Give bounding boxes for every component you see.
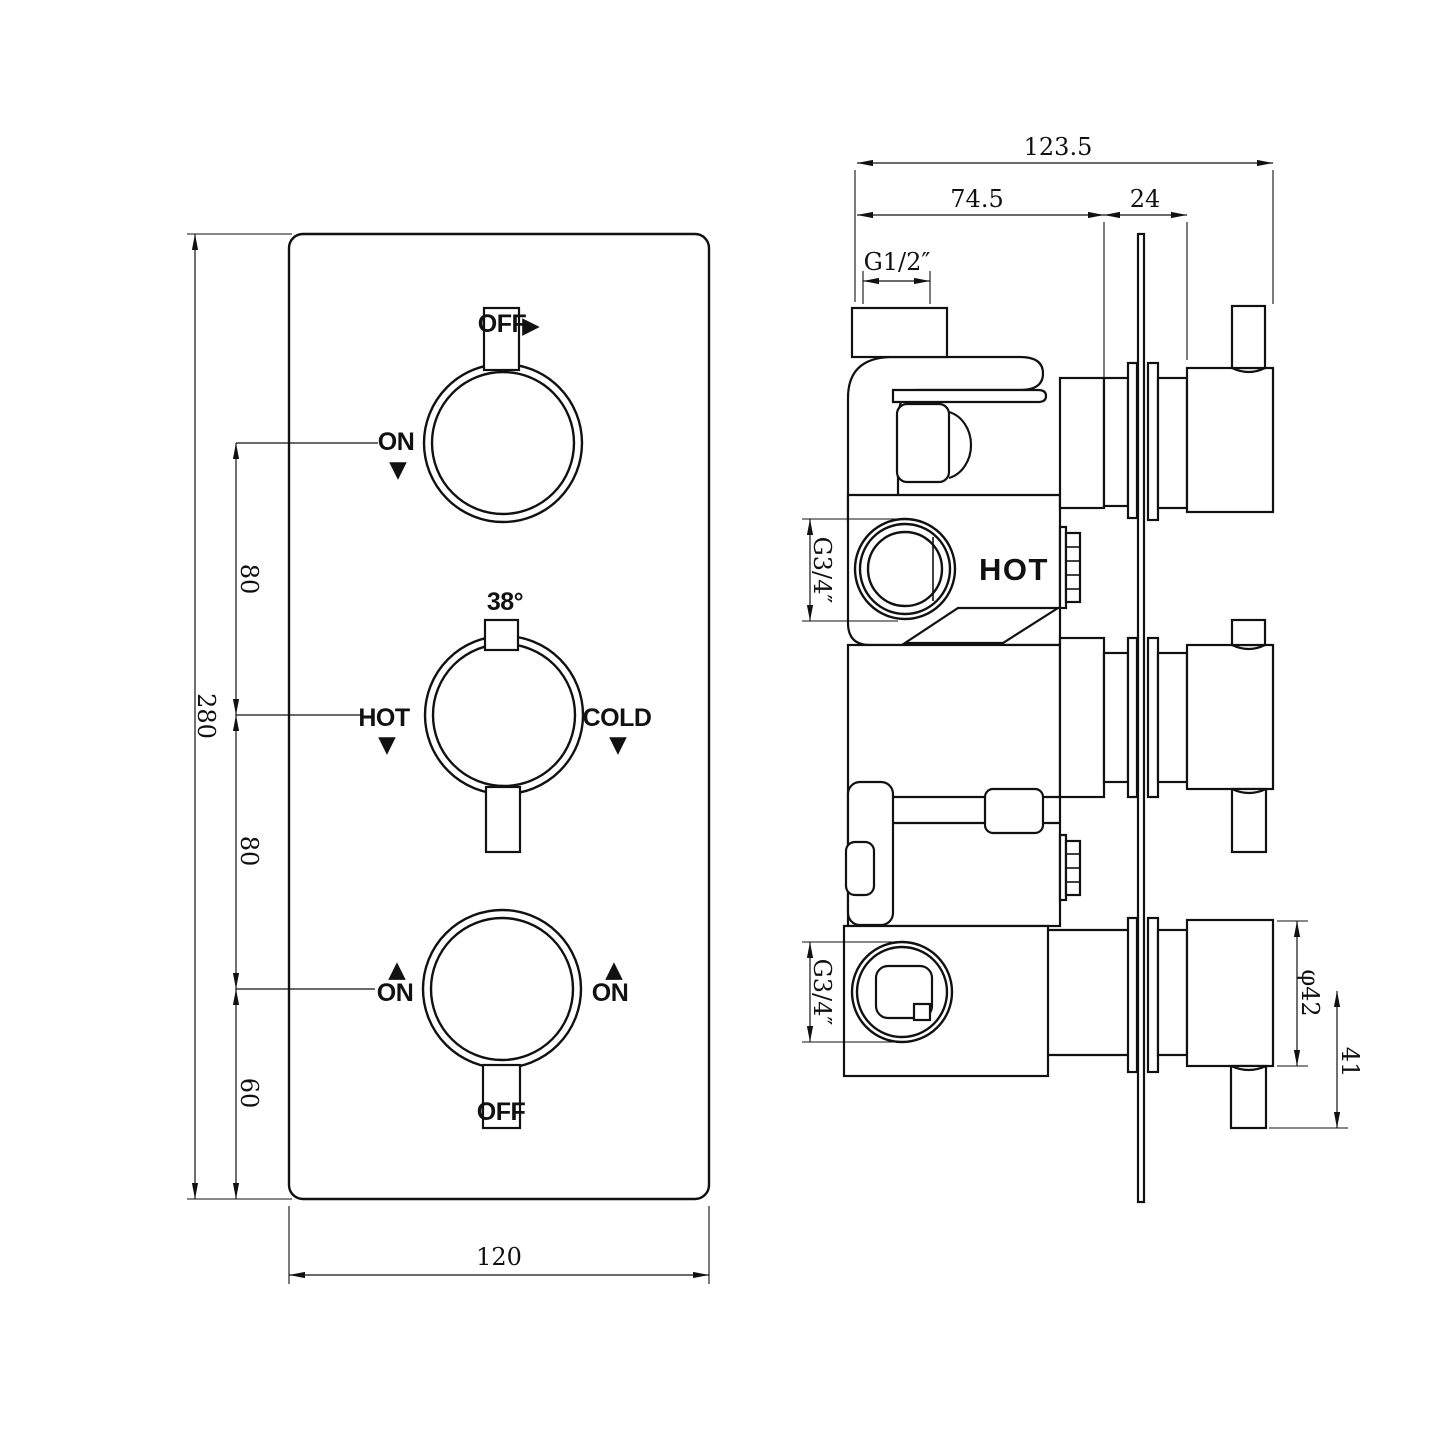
dim-plate-to-knob-label: 24 [1130,185,1161,213]
knob-bottom-on-right-label: ON [592,979,629,1007]
pipe-lip [893,390,1046,402]
side-knob-bottom-stem [1231,1066,1266,1128]
dim-plate-width-label: 120 [476,1243,522,1271]
pipe-coupling [985,789,1043,833]
side-knob-top-tab [1232,306,1265,368]
cartridge-ribs-lower [1060,835,1080,900]
dim-knob-diameter-label: φ42 [1296,969,1324,1016]
valve-insert [897,404,949,482]
side-view: HOT [802,133,1364,1202]
dim-plate-height-label: 280 [192,693,220,739]
body-tab-left [846,842,874,895]
inlet-stub-g12 [852,308,947,357]
wall-plate-edge [1138,234,1144,1202]
front-view: 280 80 80 60 120 OFF ▶ ON ▼ 38° HOT ▼ CO… [187,234,709,1284]
side-knob-middle [1060,620,1273,852]
side-knob-middle-tab [1232,620,1265,645]
side-knob-middle-stem [1232,789,1266,852]
knob-bottom-off-label: OFF [477,1098,526,1126]
knob-middle-tab-top [485,620,518,650]
dim-seg-top-label: 80 [235,564,263,595]
bottom-port-notch [914,1004,930,1020]
knob-top-down-arrow-icon: ▼ [389,457,407,483]
knob-top-rotate-right-icon: ▶ [522,313,540,339]
technical-drawing-page: 280 80 80 60 120 OFF ▶ ON ▼ 38° HOT ▼ CO… [0,0,1445,1445]
knob-middle-temp-label: 38° [487,588,523,616]
cartridge-ribs-upper [1060,527,1080,608]
side-knob-bottom [1128,918,1273,1128]
side-knob-top [1060,306,1273,520]
dim-body-depth-label: 74.5 [950,185,1003,213]
dim-total-width-label: 123.5 [1024,133,1093,161]
knob-middle-tab-bottom [486,787,520,852]
dim-thread-hot-label: G3/4″ [808,537,836,604]
knob-top-on-label: ON [378,428,415,456]
dim-seg-bot-label: 60 [235,1078,263,1109]
side-hot-label: HOT [979,552,1049,587]
dim-knob-depth-label: 41 [1336,1047,1364,1078]
knob-bottom-on-left-label: ON [377,979,414,1007]
shower-valve-drawing: 280 80 80 60 120 OFF ▶ ON ▼ 38° HOT ▼ CO… [0,0,1445,1445]
dim-seg-mid-label: 80 [235,836,263,867]
knob-top-off-label: OFF [478,310,527,338]
knob-middle-hot-arrow-icon: ▼ [378,732,396,758]
knob-middle-cold-label: COLD [583,704,652,732]
dim-thread-top-label: G1/2″ [864,248,931,276]
knob-middle-cold-arrow-icon: ▼ [609,732,627,758]
knob-middle-hot-label: HOT [358,704,410,732]
dim-thread-bottom-label: G3/4″ [808,959,836,1026]
insert-arc [949,412,971,478]
